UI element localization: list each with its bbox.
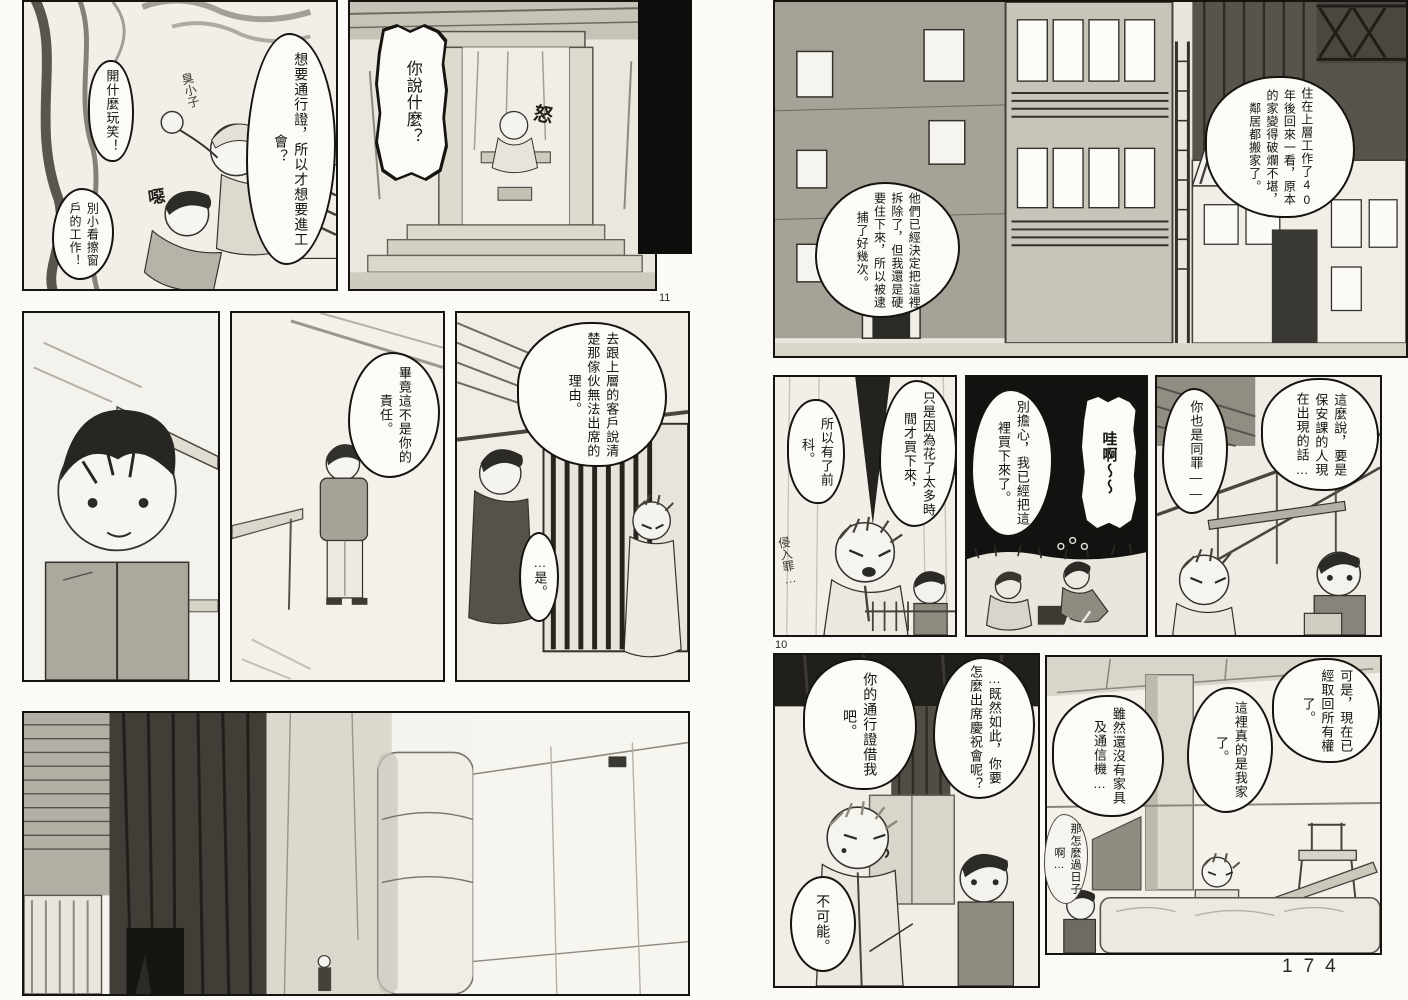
speech-bubble-what-text: 你說什麼？: [378, 27, 445, 178]
panel-boy-closeup: [22, 311, 220, 682]
panel-number-11: 11: [659, 292, 670, 304]
thought-bubble-how-live: 那怎麼過日子啊…: [1044, 814, 1088, 904]
hall-panel-art: [24, 713, 688, 994]
speech-bubble-wow-text: 哇啊～～: [1082, 397, 1136, 528]
speech-bubble-explain: 去跟上層的客戶說清楚那傢伙無法出席的理由。: [517, 322, 667, 467]
speech-bubble-kidding: 開什麼玩笑！: [88, 60, 134, 162]
boy-closeup-art: [24, 313, 218, 680]
speech-bubble-forty-years: 住在上層工作了40年後回來一看，原本的家變得破爛不堪，鄰居都搬家了。: [1205, 76, 1355, 218]
speech-bubble-security: 這麼說，要是保安課的人現在出現的話…: [1261, 378, 1379, 491]
page-number: 174: [1282, 956, 1347, 978]
speech-bubble-ownership: 可是，現在已經取回所有權了。: [1272, 658, 1380, 763]
speech-bubble-record: 所以有了前科。: [787, 399, 845, 504]
speech-bubble-lend: 你的通行證借我吧。: [803, 658, 917, 790]
panel-number-10: 10: [775, 639, 787, 651]
black-gutter-block: [638, 0, 692, 254]
speech-bubble-wow: 哇啊～～: [1079, 394, 1139, 531]
speech-bubble-yes: …是。: [519, 532, 559, 622]
speech-bubble-what: 你說什麼？: [375, 24, 448, 181]
sfx-grunt: 噁: [141, 186, 168, 206]
speech-bubble-no-way: 不可能。: [790, 876, 856, 972]
speech-bubble-furniture: 雖然還沒有家具及通信機…: [1052, 695, 1164, 817]
panel-hall: [22, 711, 690, 996]
